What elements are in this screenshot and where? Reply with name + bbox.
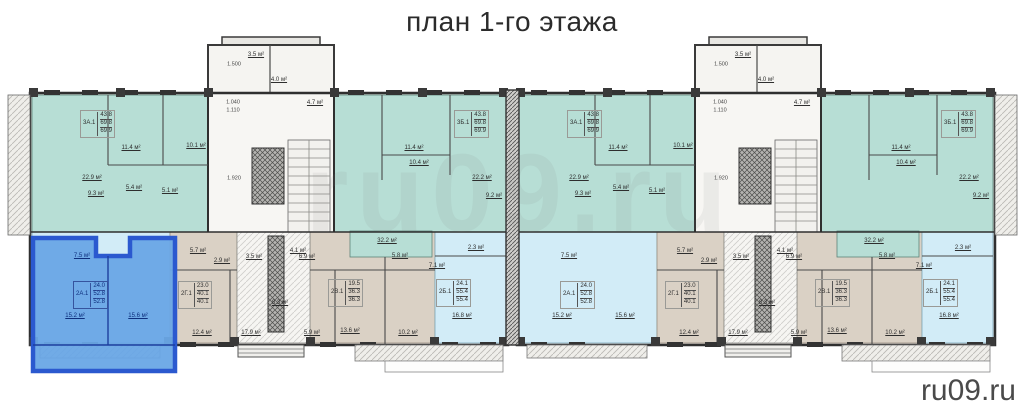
room-area-label: 16.8 м² xyxy=(939,313,958,319)
room-area-label: 10.4 м² xyxy=(409,160,428,166)
room-area-label: 4.7 м² xyxy=(794,100,810,106)
room-area-label: 7.1 м² xyxy=(429,263,445,269)
room-area-label: 22.2 м² xyxy=(472,175,491,181)
room-area-label: 5.7 м² xyxy=(677,248,693,254)
room-area-label: 22.9 м² xyxy=(569,175,588,181)
room-area-label: 16.8 м² xyxy=(452,313,471,319)
room-area-label: 1.110 xyxy=(713,108,726,114)
room-area-label: 17.9 м² xyxy=(728,330,747,336)
room-area-label: 1.500 xyxy=(714,62,728,68)
room-area-label: 7.1 м² xyxy=(916,263,932,269)
room-area-label: 5.1 м² xyxy=(649,188,665,194)
room-area-label: 3.5 м² xyxy=(733,254,749,260)
room-area-label: 7.5 м² xyxy=(561,253,577,259)
apartment-stamp-2А.1: 2А.124.052.852.8 xyxy=(560,281,595,309)
room-area-label: 5.9 м² xyxy=(304,330,320,336)
floor-plan-page: ru09.ru 11.4 м²10.1 м²22.9 м²9.3 м²5.4 м… xyxy=(0,0,1024,412)
room-area-label: 1.110 xyxy=(226,108,239,114)
room-area-label: 11.4 м² xyxy=(121,145,140,151)
apartment-stamp-3Б.1: 3Б.143.869.869.9 xyxy=(941,110,976,138)
room-area-label: 15.2 м² xyxy=(65,313,84,319)
room-area-label: 2.9 м² xyxy=(214,258,230,264)
annotations-layer: 11.4 м²10.1 м²22.9 м²9.3 м²5.4 м²5.1 м²3… xyxy=(0,0,1024,412)
room-area-label: 6.9 м² xyxy=(299,254,315,260)
room-area-label: 10.4 м² xyxy=(896,160,915,166)
room-area-label: 32.2 м² xyxy=(864,238,883,244)
room-area-label: 2.3 м² xyxy=(468,245,484,251)
room-area-label: 5.8 м² xyxy=(392,253,408,259)
watermark: ru09.ru xyxy=(921,374,1016,408)
page-title: план 1-го этажа xyxy=(0,6,1024,38)
room-area-label: 6.9 м² xyxy=(786,254,802,260)
room-area-label: 9.3 м² xyxy=(88,191,104,197)
room-area-label: 10.1 м² xyxy=(186,143,205,149)
room-area-label: 2.3 м² xyxy=(955,245,971,251)
room-area-label: 3.5 м² xyxy=(246,254,262,260)
room-area-label: 1.040 xyxy=(226,100,240,106)
room-area-label: 13.6 м² xyxy=(827,328,846,334)
room-area-label: 17.9 м² xyxy=(241,330,260,336)
room-area-label: 2.9 м² xyxy=(701,258,717,264)
room-area-label: 22.2 м² xyxy=(959,175,978,181)
room-area-label: 3.5 м² xyxy=(735,52,751,58)
room-area-label: 11.4 м² xyxy=(891,145,910,151)
room-area-label: 15.6 м² xyxy=(615,313,634,319)
apartment-stamp-2Б.1: 2Б.124.155.455.4 xyxy=(923,279,958,307)
room-area-label: 5.1 м² xyxy=(162,188,178,194)
room-area-label: 5.9 м² xyxy=(791,330,807,336)
room-area-label: 22.9 м² xyxy=(82,175,101,181)
room-area-label: 5.4 м² xyxy=(613,185,629,191)
room-area-label: 4.0 м² xyxy=(271,77,287,83)
room-area-label: 5.7 м² xyxy=(190,248,206,254)
room-area-label: 7.5 м² xyxy=(74,253,90,259)
room-area-label: 11.4 м² xyxy=(404,145,423,151)
room-area-label: 8.3 м² xyxy=(272,300,288,306)
apartment-stamp-2Г.1: 2Г.123.040.140.1 xyxy=(178,281,212,309)
room-area-label: 13.6 м² xyxy=(340,328,359,334)
room-area-label: 15.2 м² xyxy=(552,313,571,319)
apartment-stamp-2В.1: 2В.119.536.336.3 xyxy=(328,279,363,307)
apartment-stamp-3А.1: 3А.143.869.869.9 xyxy=(567,110,602,138)
apartment-stamp-2А.1: 2А.124.052.852.8 xyxy=(73,281,108,309)
room-area-label: 1.040 xyxy=(713,100,727,106)
room-area-label: 9.2 м² xyxy=(973,193,989,199)
room-area-label: 8.3 м² xyxy=(759,300,775,306)
room-area-label: 5.4 м² xyxy=(126,185,142,191)
room-area-label: 11.4 м² xyxy=(608,145,627,151)
room-area-label: 1.920 xyxy=(714,176,728,182)
room-area-label: 3.5 м² xyxy=(248,52,264,58)
room-area-label: 10.2 м² xyxy=(398,330,417,336)
apartment-stamp-3А.1: 3А.143.869.869.9 xyxy=(80,110,115,138)
room-area-label: 9.3 м² xyxy=(575,191,591,197)
room-area-label: 15.6 м² xyxy=(128,313,147,319)
room-area-label: 5.8 м² xyxy=(879,253,895,259)
apartment-stamp-3Б.1: 3Б.143.869.869.9 xyxy=(454,110,489,138)
room-area-label: 4.7 м² xyxy=(307,100,323,106)
apartment-stamp-2Г.1: 2Г.123.040.140.1 xyxy=(665,281,699,309)
room-area-label: 10.2 м² xyxy=(885,330,904,336)
room-area-label: 4.0 м² xyxy=(758,77,774,83)
room-area-label: 12.4 м² xyxy=(679,330,698,336)
room-area-label: 32.2 м² xyxy=(377,238,396,244)
room-area-label: 12.4 м² xyxy=(192,330,211,336)
apartment-stamp-2В.1: 2В.119.536.336.3 xyxy=(815,279,850,307)
room-area-label: 1.500 xyxy=(227,62,241,68)
apartment-stamp-2Б.1: 2Б.124.155.455.4 xyxy=(436,279,471,307)
room-area-label: 10.1 м² xyxy=(673,143,692,149)
room-area-label: 1.920 xyxy=(227,176,241,182)
room-area-label: 9.2 м² xyxy=(486,193,502,199)
